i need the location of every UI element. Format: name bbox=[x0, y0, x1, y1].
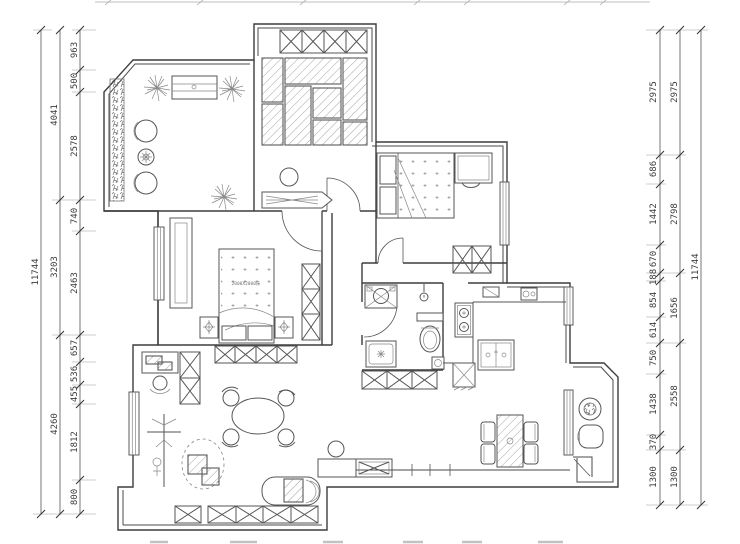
top-dimension-crop bbox=[95, 0, 650, 5]
tv-cabinet bbox=[170, 218, 192, 308]
window-dining bbox=[564, 390, 573, 455]
dim-label: 670 bbox=[649, 251, 659, 267]
side-table bbox=[318, 441, 356, 477]
cabinet-row-south bbox=[215, 346, 297, 363]
nightstand bbox=[200, 317, 218, 338]
dim-label: 11744 bbox=[31, 258, 41, 285]
plant-icon bbox=[211, 184, 237, 210]
door-hallway-closet bbox=[327, 178, 360, 211]
balcony-top-left bbox=[110, 75, 245, 210]
tv-cabinet-row bbox=[208, 506, 318, 523]
plant-icon bbox=[219, 76, 245, 102]
shoe-cabinet bbox=[175, 506, 201, 523]
dim-label: 657 bbox=[70, 340, 80, 356]
lounge-chair bbox=[262, 477, 320, 505]
dimension-right: 2975 686 1442 670 188 854 614 750 1438 3… bbox=[646, 26, 708, 509]
dining-area bbox=[481, 415, 538, 467]
dim-label: 536 bbox=[70, 366, 80, 382]
bathroom bbox=[362, 284, 444, 389]
dim-label: 1300 bbox=[649, 466, 659, 488]
wardrobe-blocks bbox=[262, 58, 367, 145]
door-master-bedroom bbox=[282, 211, 322, 251]
dining-chair bbox=[481, 422, 495, 442]
master-bedroom: 2000X2000床 bbox=[170, 218, 320, 363]
nightstand bbox=[275, 317, 293, 338]
plant-icon bbox=[144, 75, 170, 101]
dim-label: 614 bbox=[649, 322, 659, 338]
door-bedroom2 bbox=[378, 238, 403, 263]
cutting-board bbox=[483, 287, 499, 297]
kitchen bbox=[443, 287, 566, 390]
dim-label: 2975 bbox=[670, 81, 680, 103]
wardrobe bbox=[453, 246, 491, 273]
flower-basin bbox=[579, 398, 601, 420]
bed-size-label: 2000X2000床 bbox=[232, 280, 261, 287]
dim-label: 2975 bbox=[649, 81, 659, 103]
bed-single bbox=[377, 153, 454, 218]
bucket-chair bbox=[578, 425, 603, 448]
dim-label: 4041 bbox=[50, 104, 60, 126]
cabinet-row bbox=[280, 30, 367, 53]
dim-label: 1812 bbox=[70, 431, 80, 453]
balcony-right bbox=[578, 398, 603, 448]
dim-label: 740 bbox=[70, 208, 80, 224]
dining-chair bbox=[524, 444, 538, 464]
bedroom2 bbox=[377, 153, 492, 273]
balcony-chair bbox=[135, 172, 157, 194]
bed-double: 2000X2000床 bbox=[219, 249, 274, 343]
door-balcony-right bbox=[574, 459, 590, 476]
stove bbox=[455, 303, 473, 337]
shower-head-icon bbox=[420, 284, 428, 301]
dim-label: 2798 bbox=[670, 203, 680, 225]
dim-label: 1442 bbox=[649, 203, 659, 225]
dim-label: 1438 bbox=[649, 393, 659, 415]
dim-label: 2578 bbox=[70, 135, 80, 157]
walkin-closet bbox=[262, 30, 367, 208]
mop-basin bbox=[366, 341, 396, 367]
sink bbox=[478, 340, 514, 370]
floor-drain bbox=[432, 357, 444, 369]
dim-label: 11744 bbox=[691, 253, 701, 280]
door-bathroom bbox=[364, 304, 397, 337]
dim-label: 4260 bbox=[50, 413, 60, 435]
dim-label: 2463 bbox=[70, 272, 80, 294]
cabinet-row bbox=[362, 371, 437, 389]
dressing-table bbox=[262, 192, 332, 208]
dim-label: 3203 bbox=[50, 256, 60, 278]
windows bbox=[129, 182, 573, 455]
dim-label: 963 bbox=[70, 42, 80, 58]
floor-lamp bbox=[147, 414, 181, 487]
floor-plan-page: 2000X2000床 bbox=[0, 0, 740, 544]
small-appliance bbox=[521, 288, 537, 300]
rug bbox=[182, 439, 224, 489]
dim-label: 455 bbox=[70, 386, 80, 402]
dim-label: 2558 bbox=[670, 385, 680, 407]
cabinet-box bbox=[356, 459, 392, 477]
living-room bbox=[142, 352, 392, 523]
fridge bbox=[453, 363, 475, 390]
planter-strip bbox=[110, 79, 124, 201]
dim-label: 500 bbox=[70, 73, 80, 89]
dining-table bbox=[497, 415, 523, 467]
window-kitchen bbox=[564, 287, 573, 325]
window-bedroom2 bbox=[500, 182, 509, 245]
dim-label: 1656 bbox=[670, 297, 680, 319]
toilet bbox=[417, 313, 443, 352]
dim-label: 854 bbox=[649, 292, 659, 308]
desk bbox=[142, 352, 178, 393]
window-master-bedroom bbox=[154, 227, 164, 300]
dim-label: 188 bbox=[649, 269, 659, 285]
dressing-stool bbox=[280, 168, 298, 186]
flower-pot bbox=[138, 149, 154, 165]
balcony-chair bbox=[135, 120, 157, 142]
dim-label: 800 bbox=[70, 489, 80, 505]
desk bbox=[455, 153, 492, 188]
dim-label: 370 bbox=[649, 434, 659, 450]
dimension-left: 963 500 2578 740 2463 657 536 455 1812 8… bbox=[31, 26, 96, 518]
window-living-room bbox=[129, 392, 139, 455]
floor-plan-canvas: 2000X2000床 bbox=[0, 0, 740, 544]
dim-label: 686 bbox=[649, 161, 659, 177]
cabinet-column bbox=[180, 352, 200, 404]
dim-label: 750 bbox=[649, 350, 659, 366]
washing-machine bbox=[365, 285, 397, 308]
wardrobe-column bbox=[302, 264, 320, 340]
bench bbox=[172, 76, 217, 99]
dining-chair bbox=[524, 422, 538, 442]
dim-label: 1300 bbox=[670, 466, 680, 488]
dining-chair bbox=[481, 444, 495, 464]
doors bbox=[282, 178, 590, 476]
